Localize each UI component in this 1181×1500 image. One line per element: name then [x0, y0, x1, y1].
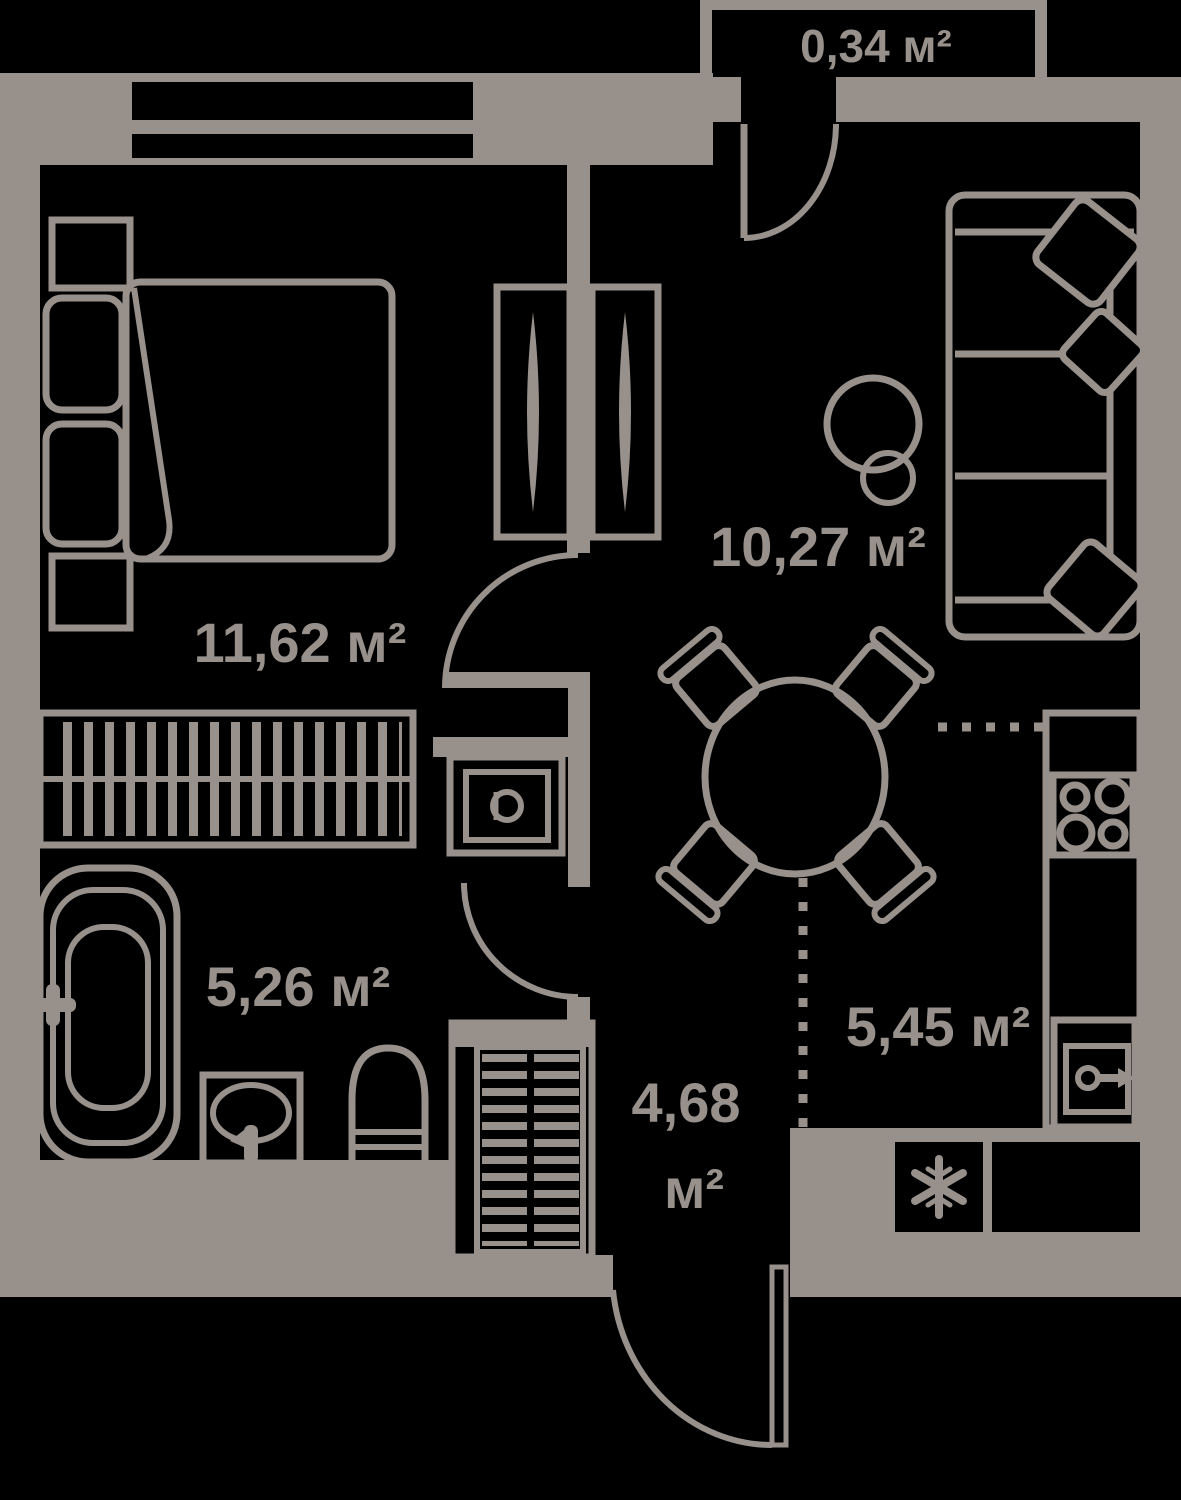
toilet-icon [352, 1048, 425, 1163]
bathtub-icon [30, 868, 177, 1162]
pillow-icon [46, 298, 122, 410]
living-room-area-label: 10,27 м² [710, 515, 926, 578]
area-labels: 0,34 м² 11,62 м² 10,27 м² 5,26 м² 5,45 м… [194, 20, 1031, 1220]
chair-icon [658, 626, 764, 733]
chair-icon [828, 626, 934, 733]
balcony-area-label: 0,34 м² [800, 20, 952, 72]
floor-plan: 0,34 м² 11,62 м² 10,27 м² 5,26 м² 5,45 м… [0, 0, 1181, 1500]
entry-door-swing-icon [613, 1267, 786, 1445]
bathroom-sink-icon [203, 1075, 300, 1163]
floor-lamp-icon [827, 378, 919, 503]
kitchen-area-label: 5,45 м² [846, 995, 1031, 1058]
shoe-rack-icon [452, 1023, 592, 1257]
bathroom-area-label: 5,26 м² [206, 955, 391, 1018]
bedroom-area-label: 11,62 м² [194, 611, 407, 674]
fridge-snowflake-icon [915, 1159, 963, 1215]
sofa-cushion-icon [1059, 308, 1147, 396]
window-icon [132, 82, 473, 158]
stove-icon [1053, 775, 1133, 855]
balcony-door-swing-icon [744, 124, 836, 238]
bedroom-door-swing-icon [445, 555, 578, 688]
pillow-icon [46, 424, 122, 544]
nightstand-icon [52, 220, 130, 288]
hallway-area-unit: м² [664, 1157, 724, 1220]
chair-icon [830, 817, 936, 924]
bed-icon [126, 282, 392, 559]
floor-plan-canvas: 0,34 м² 11,62 м² 10,27 м² 5,26 м² 5,45 м… [0, 0, 1181, 1500]
bathroom-door-swing-icon [464, 883, 578, 997]
hallway-area-label: 4,68 [632, 1071, 741, 1134]
sofa-cushion-icon [1032, 196, 1144, 308]
sofa-cushion-icon [1043, 538, 1144, 639]
kitchen-sink-icon [1054, 1020, 1135, 1127]
washing-machine-icon [450, 757, 562, 853]
chair-icon [656, 817, 762, 924]
nightstand-icon [52, 556, 130, 628]
wardrobe-hangers-icon [40, 713, 413, 845]
zone-boundary-dotted-icon [803, 727, 1046, 1128]
